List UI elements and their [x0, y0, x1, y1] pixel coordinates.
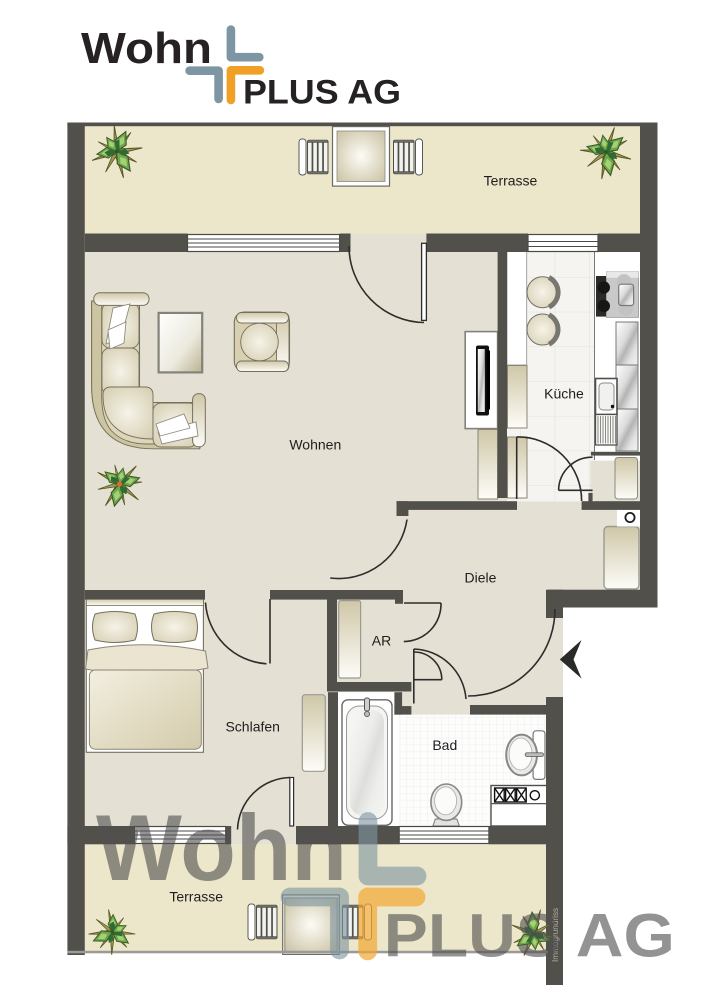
- svg-text:Wohn: Wohn: [81, 24, 212, 73]
- svg-text:Terrasse: Terrasse: [484, 173, 538, 189]
- svg-text:Wohn: Wohn: [96, 795, 347, 900]
- svg-text:Küche: Küche: [544, 386, 584, 402]
- svg-text:PLUS AG: PLUS AG: [243, 73, 401, 111]
- svg-text:AR: AR: [372, 632, 391, 648]
- svg-text:PLUS AG: PLUS AG: [384, 901, 675, 969]
- svg-text:Wohnen: Wohnen: [289, 436, 341, 452]
- svg-text:Schlafen: Schlafen: [225, 719, 279, 735]
- svg-text:Bad: Bad: [432, 737, 457, 753]
- svg-text:Diele: Diele: [465, 570, 497, 586]
